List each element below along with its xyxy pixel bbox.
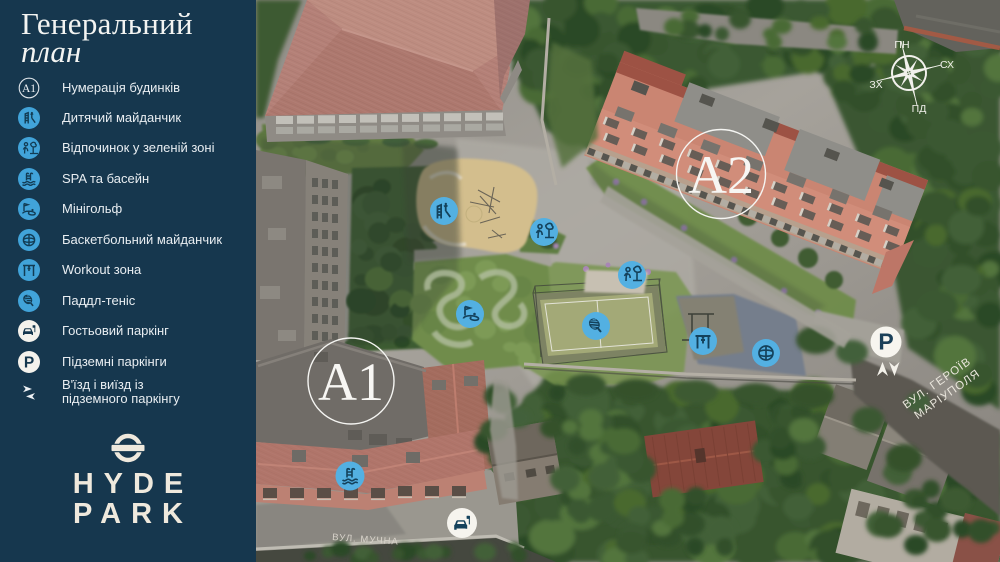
svg-text:ПН: ПН (894, 39, 909, 51)
svg-text:A2: A2 (688, 145, 754, 205)
svg-text:P: P (24, 354, 34, 371)
svg-text:P: P (878, 329, 893, 355)
svg-text:ПД: ПД (912, 103, 927, 115)
svg-text:A1: A1 (22, 83, 36, 95)
svg-text:A1: A1 (318, 352, 384, 412)
svg-text:ЗХ: ЗХ (869, 79, 882, 91)
svg-text:СХ: СХ (940, 59, 954, 71)
